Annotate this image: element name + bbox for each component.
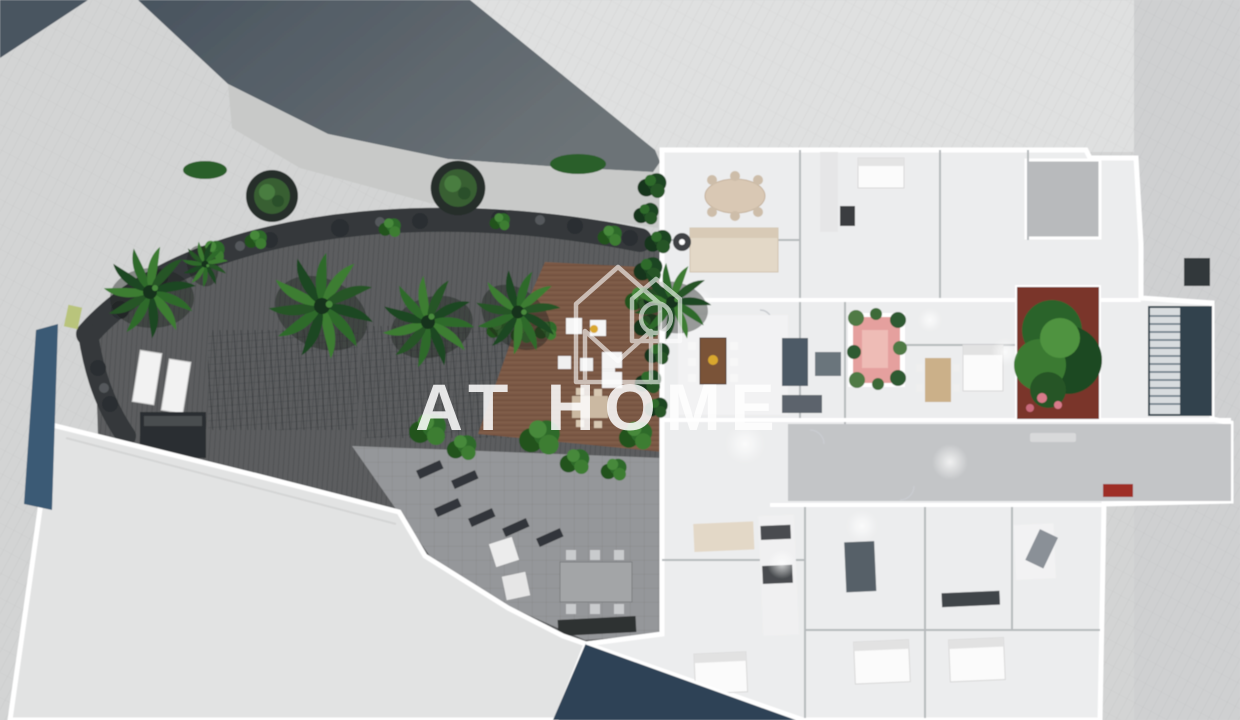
walkway-red-mat xyxy=(1103,484,1133,497)
bath-lower xyxy=(844,541,876,592)
bed-lower-right xyxy=(949,638,1006,682)
sofa-lower xyxy=(693,521,754,552)
plan-terrace-gray xyxy=(1026,160,1100,238)
right-wing-unit xyxy=(1184,258,1210,286)
bed-lower-mid xyxy=(854,640,911,684)
staircase xyxy=(1148,306,1212,416)
red-planter xyxy=(1014,286,1102,420)
dining-room xyxy=(705,171,765,221)
bedroom-top xyxy=(858,158,904,188)
outdoor-dining-table xyxy=(560,550,632,614)
floorplan-render: AT HOME xyxy=(0,0,1240,720)
kitchen-counter-lower xyxy=(941,591,1000,608)
plan-walkway xyxy=(788,424,1231,501)
pink-courtyard xyxy=(847,308,907,390)
watermark-brand-text: AT HOME xyxy=(415,370,784,444)
deck-table-small-2 xyxy=(502,572,530,600)
walkway-marking xyxy=(1030,433,1076,442)
